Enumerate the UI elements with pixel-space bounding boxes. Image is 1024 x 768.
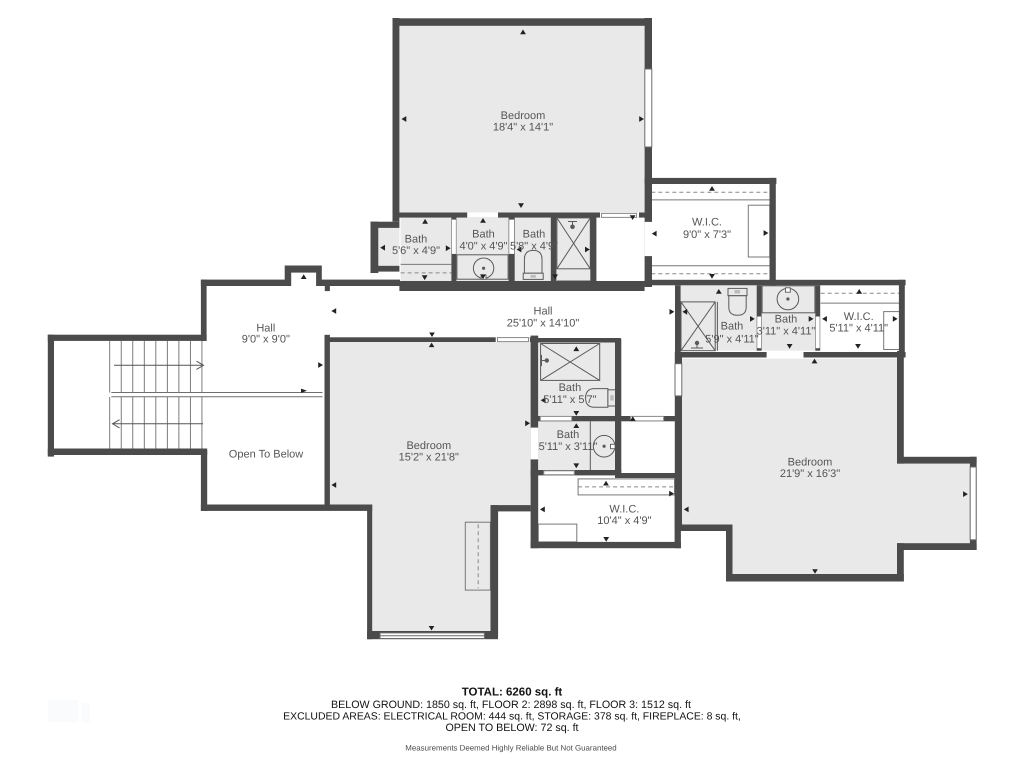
svg-text:9'0" x 9'0": 9'0" x 9'0" [242, 334, 290, 346]
svg-text:OPEN TO BELOW: 72 sq. ft: OPEN TO BELOW: 72 sq. ft [445, 722, 578, 734]
svg-text:5'11" x 5'7": 5'11" x 5'7" [543, 394, 596, 406]
svg-text:5'9" x 4'11": 5'9" x 4'11" [705, 334, 758, 346]
svg-text:TOTAL: 6260 sq. ft: TOTAL: 6260 sq. ft [462, 687, 563, 699]
svg-text:Bath: Bath [523, 229, 546, 241]
svg-text:Open To Below: Open To Below [229, 449, 303, 461]
svg-text:Hall: Hall [534, 306, 553, 318]
svg-text:5'11" x 4'11": 5'11" x 4'11" [829, 323, 888, 335]
svg-text:Bath: Bath [472, 229, 495, 241]
svg-text:Bath: Bath [559, 382, 582, 394]
svg-text:15'2" x 21'8": 15'2" x 21'8" [399, 451, 459, 463]
svg-text:5'8" x 4'9": 5'8" x 4'9" [510, 241, 558, 253]
svg-text:BELOW GROUND: 1850 sq. ft, FLO: BELOW GROUND: 1850 sq. ft, FLOOR 2: 2898… [331, 699, 691, 711]
svg-text:Bedroom: Bedroom [501, 110, 546, 122]
svg-text:10'4" x 4'9": 10'4" x 4'9" [597, 515, 651, 527]
svg-text:18'4" x 14'1": 18'4" x 14'1" [493, 122, 553, 134]
svg-text:3'11" x 4'11": 3'11" x 4'11" [757, 325, 816, 337]
svg-text:Bath: Bath [775, 314, 798, 326]
svg-text:Bedroom: Bedroom [406, 440, 451, 452]
svg-text:Bedroom: Bedroom [788, 457, 833, 469]
svg-text:5'11" x 3'11": 5'11" x 3'11" [539, 441, 598, 453]
svg-text:21'9" x 16'3": 21'9" x 16'3" [780, 468, 840, 480]
svg-text:4'0" x 4'9": 4'0" x 4'9" [459, 241, 507, 253]
svg-text:W.I.C.: W.I.C. [692, 217, 722, 229]
svg-text:W.I.C.: W.I.C. [844, 311, 874, 323]
svg-text:Bath: Bath [405, 234, 428, 246]
svg-text:EXCLUDED AREAS: ELECTRICAL ROO: EXCLUDED AREAS: ELECTRICAL ROOM: 444 sq.… [283, 712, 741, 723]
svg-text:Bath: Bath [721, 320, 744, 332]
svg-text:25'10" x 14'10": 25'10" x 14'10" [507, 317, 580, 329]
svg-text:Bath: Bath [557, 429, 580, 441]
svg-text:9'0" x 7'3": 9'0" x 7'3" [683, 229, 731, 241]
svg-text:5'6" x 4'9": 5'6" x 4'9" [392, 245, 440, 257]
svg-text:Measurements Deemed Highly Rel: Measurements Deemed Highly Reliable But … [405, 744, 616, 753]
svg-text:W.I.C.: W.I.C. [609, 504, 639, 516]
